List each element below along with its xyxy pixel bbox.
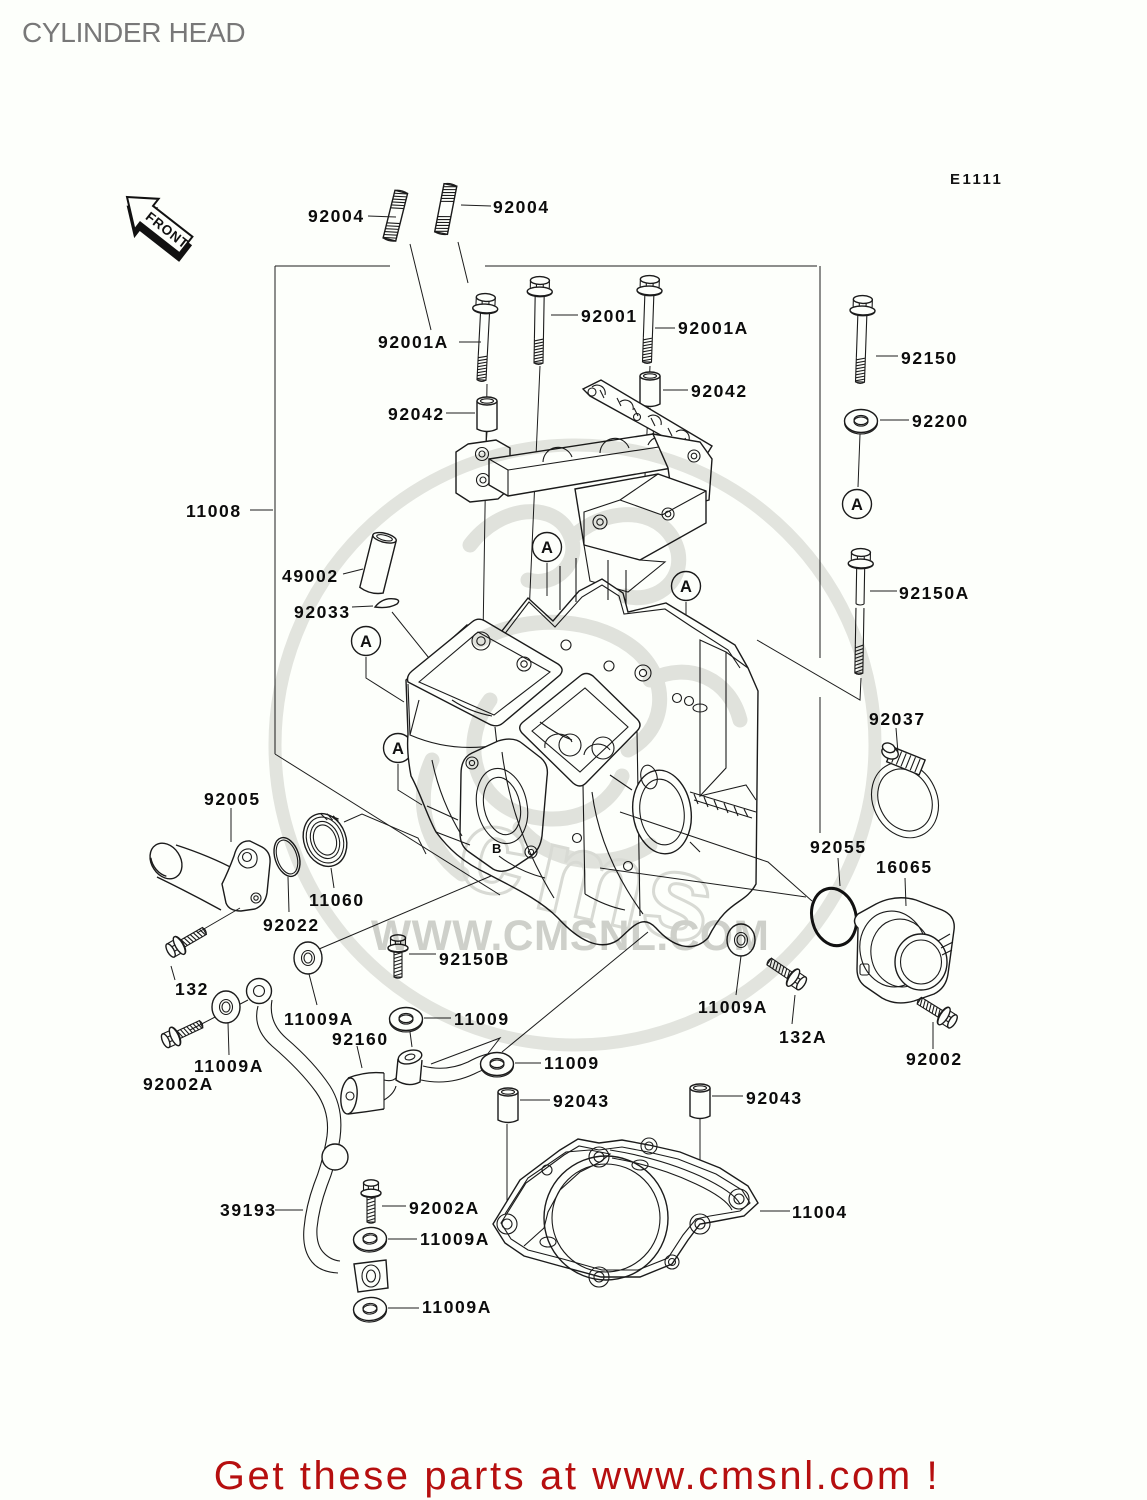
- svg-text:WWW.CMSNL.COM: WWW.CMSNL.COM: [371, 913, 769, 960]
- svg-text:92150A: 92150A: [899, 583, 970, 603]
- svg-text:92001A: 92001A: [678, 318, 749, 338]
- svg-text:92150: 92150: [901, 348, 958, 368]
- svg-text:11009A: 11009A: [420, 1229, 490, 1249]
- svg-text:11009A: 11009A: [284, 1009, 354, 1029]
- svg-text:11009: 11009: [544, 1053, 600, 1073]
- svg-text:92042: 92042: [691, 381, 748, 401]
- svg-text:92043: 92043: [746, 1088, 803, 1108]
- svg-text:132: 132: [175, 979, 209, 999]
- svg-text:92043: 92043: [553, 1091, 610, 1111]
- svg-text:CYLINDER HEAD: CYLINDER HEAD: [22, 17, 245, 48]
- svg-text:92042: 92042: [388, 404, 445, 424]
- svg-text:92160: 92160: [332, 1029, 389, 1049]
- svg-text:92005: 92005: [204, 789, 261, 809]
- svg-text:11008: 11008: [186, 501, 242, 521]
- svg-text:92002A: 92002A: [409, 1198, 480, 1218]
- svg-text:92001: 92001: [581, 306, 638, 326]
- svg-text:39193: 39193: [220, 1200, 277, 1220]
- svg-text:92001A: 92001A: [378, 332, 449, 352]
- svg-text:11004: 11004: [792, 1202, 848, 1222]
- svg-text:E1111: E1111: [950, 171, 1003, 188]
- svg-text:92022: 92022: [263, 915, 320, 935]
- svg-text:11009A: 11009A: [422, 1297, 492, 1317]
- svg-text:11009A: 11009A: [194, 1056, 264, 1076]
- svg-text:92002A: 92002A: [143, 1074, 214, 1094]
- svg-text:92200: 92200: [912, 411, 969, 431]
- svg-text:Get these parts at www.cmsnl.c: Get these parts at www.cmsnl.com !: [214, 1454, 940, 1498]
- svg-text:16065: 16065: [876, 857, 933, 877]
- svg-text:92004: 92004: [308, 206, 365, 226]
- svg-text:92002: 92002: [906, 1049, 963, 1069]
- svg-text:132A: 132A: [779, 1027, 827, 1047]
- svg-text:92004: 92004: [493, 197, 550, 217]
